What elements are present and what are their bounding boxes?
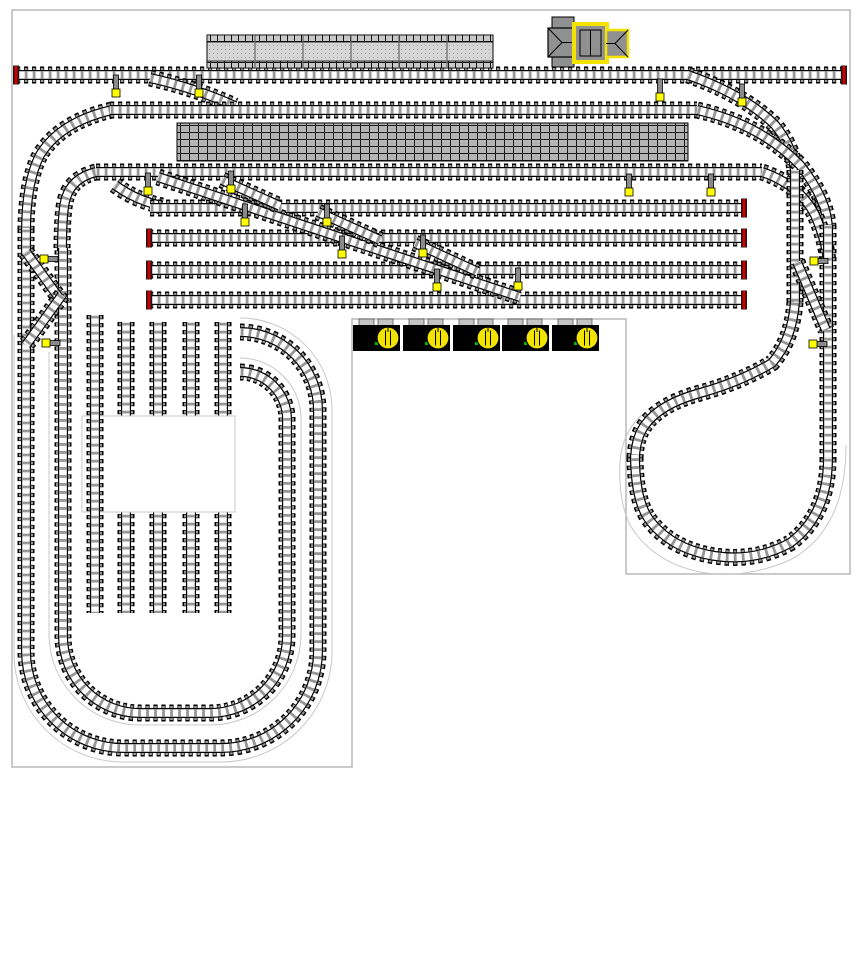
- lever-handle[interactable]: [42, 339, 50, 347]
- switch-lever[interactable]: [433, 269, 441, 291]
- switch-lever[interactable]: [514, 268, 522, 290]
- switch-lever[interactable]: [338, 236, 346, 258]
- buffer-red-bar: [743, 229, 746, 247]
- lever-handle[interactable]: [656, 93, 664, 101]
- lever-handle[interactable]: [241, 218, 249, 226]
- buffer-stop[interactable]: [741, 199, 747, 218]
- platform-edge-bottom: [207, 61, 493, 68]
- speed-regulator-1[interactable]: [353, 319, 400, 351]
- switch-lever[interactable]: [809, 340, 827, 348]
- switch-lever[interactable]: [656, 79, 664, 101]
- lever-handle[interactable]: [323, 218, 331, 226]
- buffer-stop[interactable]: [841, 66, 847, 85]
- buffer-stop[interactable]: [741, 229, 747, 248]
- lever-handle[interactable]: [707, 188, 715, 196]
- regulator-tab: [378, 319, 393, 326]
- buffer-red-bar: [15, 66, 18, 84]
- switch-lever[interactable]: [419, 235, 427, 257]
- lever-handle[interactable]: [40, 255, 48, 263]
- regulator-tab: [478, 319, 493, 326]
- building-footprint-rect[interactable]: [82, 416, 235, 512]
- track-plan-drawing: [0, 0, 862, 962]
- buffer-stop[interactable]: [741, 291, 747, 310]
- lever-handle[interactable]: [738, 98, 746, 106]
- buffer-stop[interactable]: [146, 229, 152, 248]
- lever-handle[interactable]: [419, 249, 427, 257]
- regulator-tab: [459, 319, 474, 326]
- switch-lever[interactable]: [707, 174, 715, 196]
- buffer-red-bar: [743, 261, 746, 279]
- switch-lever[interactable]: [195, 75, 203, 97]
- switch-lever[interactable]: [323, 204, 331, 226]
- lever-handle[interactable]: [433, 283, 441, 291]
- buffer-stop[interactable]: [13, 66, 19, 85]
- lever-handle[interactable]: [809, 340, 817, 348]
- brick-platform[interactable]: [177, 123, 688, 161]
- switch-lever[interactable]: [241, 204, 249, 226]
- regulator-tab: [428, 319, 443, 326]
- speed-regulator-3[interactable]: [453, 319, 500, 351]
- speed-regulator-5[interactable]: [552, 319, 599, 351]
- buffer-red-bar: [743, 291, 746, 309]
- lever-handle[interactable]: [112, 89, 120, 97]
- regulator-tab: [359, 319, 374, 326]
- buffer-red-bar: [148, 229, 151, 247]
- switch-lever[interactable]: [625, 174, 633, 196]
- regulator-tab: [527, 319, 542, 326]
- switch-lever[interactable]: [227, 171, 235, 193]
- platform-edge-top: [207, 35, 493, 42]
- lever-handle[interactable]: [338, 250, 346, 258]
- building-tab-top: [552, 17, 574, 29]
- switch-lever[interactable]: [42, 339, 60, 347]
- switch-lever[interactable]: [738, 84, 746, 106]
- buffer-stop[interactable]: [146, 261, 152, 280]
- buffer-stop[interactable]: [741, 261, 747, 280]
- station-platform[interactable]: [207, 35, 493, 68]
- buffer-red-bar: [743, 199, 746, 217]
- lever-handle[interactable]: [144, 187, 152, 195]
- lever-handle[interactable]: [514, 282, 522, 290]
- lever-handle[interactable]: [195, 89, 203, 97]
- speed-regulator-4[interactable]: [502, 319, 549, 351]
- lever-handle[interactable]: [227, 185, 235, 193]
- lever-handle[interactable]: [810, 257, 818, 265]
- lever-post: [740, 84, 745, 100]
- lever-post: [114, 75, 119, 91]
- buffer-stop[interactable]: [146, 291, 152, 310]
- regulator-tab: [409, 319, 424, 326]
- buffer-red-bar: [148, 261, 151, 279]
- switch-lever[interactable]: [112, 75, 120, 97]
- regulator-tab: [577, 319, 592, 326]
- switch-lever[interactable]: [144, 173, 152, 195]
- buffer-red-bar: [843, 66, 846, 84]
- speed-regulator-2[interactable]: [403, 319, 450, 351]
- switch-lever[interactable]: [810, 257, 828, 265]
- regulator-tab: [558, 319, 573, 326]
- switch-lever[interactable]: [40, 255, 58, 263]
- regulator-tab: [508, 319, 523, 326]
- lever-post: [197, 75, 202, 91]
- lever-post: [658, 79, 663, 95]
- lever-handle[interactable]: [625, 188, 633, 196]
- buffer-red-bar: [148, 291, 151, 309]
- track-plan-canvas[interactable]: [0, 0, 862, 962]
